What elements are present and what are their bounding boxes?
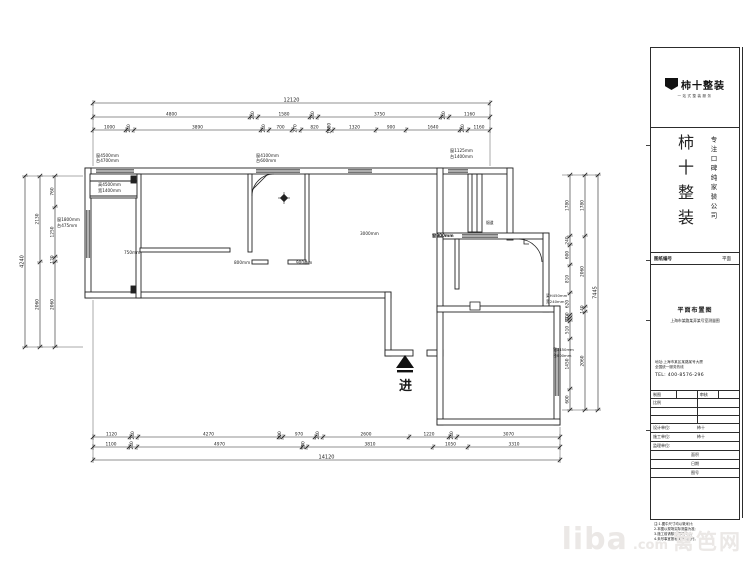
svg-text:240: 240	[460, 124, 466, 132]
svg-text:240: 240	[310, 111, 316, 119]
wall-post	[131, 176, 136, 183]
svg-text:窗1800mm: 窗1800mm	[57, 216, 80, 223]
fold-mark	[646, 260, 650, 261]
svg-text:120: 120	[49, 255, 55, 263]
wall-post	[131, 286, 136, 293]
wall	[252, 260, 268, 264]
svg-text:2060: 2060	[34, 299, 40, 310]
floorplan-svg: 1212048002401580240375024011601000240389…	[0, 0, 750, 563]
drafter-label: 制图	[651, 392, 676, 398]
svg-text:2060: 2060	[49, 299, 55, 310]
brand-vertical-panel: 柿十整装 专注口碑纯家装公司	[651, 128, 739, 253]
wall	[437, 237, 443, 425]
svg-text:240: 240	[126, 124, 132, 132]
svg-text:1160: 1160	[474, 124, 485, 130]
svg-text:3070: 3070	[503, 431, 514, 437]
entry-symbol	[396, 355, 414, 372]
svg-text:宽240mm: 宽240mm	[546, 299, 565, 304]
brand-subtitle: 一站式整装服务	[678, 94, 713, 99]
wall	[248, 174, 252, 252]
svg-text:进: 进	[399, 379, 412, 394]
drafter-value	[676, 391, 697, 398]
svg-text:4800: 4800	[166, 111, 177, 117]
number-row: 图号	[651, 470, 739, 476]
svg-text:140: 140	[579, 305, 585, 313]
area-row: 面积	[651, 452, 739, 458]
svg-text:4270: 4270	[203, 431, 214, 437]
svg-text:台4700mm: 台4700mm	[96, 157, 119, 164]
svg-text:3000mm: 3000mm	[360, 231, 379, 236]
svg-text:600: 600	[564, 395, 570, 403]
svg-text:4240: 4240	[19, 255, 25, 268]
fold-mark	[646, 320, 650, 321]
svg-text:台475mm: 台475mm	[57, 222, 77, 229]
drawing-title: 平面布置图	[651, 305, 739, 314]
project-name: 上海市某路某弄某号室测量图	[651, 318, 739, 324]
phone-number: TEL: 400-8576-296	[655, 373, 735, 378]
svg-text:1080: 1080	[327, 123, 333, 134]
svg-text:600: 600	[564, 251, 570, 259]
wall	[385, 350, 413, 356]
svg-text:梁H450mm: 梁H450mm	[546, 293, 568, 298]
brand-name: 柿十整装	[681, 77, 725, 92]
svg-text:240: 240	[441, 111, 447, 119]
wall	[437, 168, 443, 240]
svg-text:台600mm: 台600mm	[553, 353, 572, 358]
design-unit-value: 柿十	[695, 425, 739, 431]
corner-shower	[519, 239, 542, 262]
fold-mark	[646, 430, 650, 431]
svg-text:1250: 1250	[49, 226, 55, 237]
svg-text:3310: 3310	[509, 441, 520, 447]
svg-text:2060: 2060	[579, 266, 585, 277]
svg-text:宽1400mm: 宽1400mm	[98, 187, 121, 194]
svg-text:800mm: 800mm	[234, 260, 250, 265]
svg-text:240: 240	[449, 431, 455, 439]
entry-arrow-icon	[396, 355, 414, 368]
fold-mark	[646, 145, 650, 146]
checker-label: 审核	[697, 391, 718, 398]
company-logo: 柿十整装 一站式整装服务	[651, 48, 739, 128]
svg-text:窗1450mm: 窗1450mm	[553, 347, 574, 352]
svg-text:900mm: 900mm	[296, 260, 312, 265]
svg-text:240: 240	[250, 111, 256, 119]
window-layer	[86, 169, 560, 396]
svg-text:3890: 3890	[192, 124, 203, 130]
wall	[437, 419, 560, 425]
scale-value	[697, 399, 739, 407]
brand-slogan: 专注口碑纯家装公司	[708, 136, 718, 252]
svg-text:820: 820	[310, 124, 318, 130]
date-row: 日期	[651, 461, 739, 467]
svg-text:1640: 1640	[428, 124, 439, 130]
svg-text:台1400mm: 台1400mm	[450, 153, 473, 160]
duct-shaft	[468, 174, 482, 232]
svg-text:1580: 1580	[279, 111, 290, 117]
svg-text:12120: 12120	[284, 97, 300, 103]
svg-text:14120: 14120	[319, 454, 335, 460]
svg-text:620: 620	[564, 300, 570, 308]
scale-label: 比例	[651, 400, 697, 406]
wall	[455, 239, 459, 289]
wall	[140, 248, 230, 252]
svg-text:240: 240	[261, 124, 267, 132]
brand-logo-icon	[665, 78, 678, 90]
svg-text:90: 90	[564, 317, 570, 323]
svg-text:烟道: 烟道	[486, 220, 494, 225]
svg-text:810: 810	[564, 275, 570, 283]
brand-vertical-text: 柿十整装	[672, 134, 696, 252]
hotline-label: 全国统一服务热线	[655, 365, 735, 370]
title-block: 柿十整装 一站式整装服务 柿十整装 专注口碑纯家装公司 图纸编号 平面 平面布置…	[650, 47, 740, 520]
svg-text:1220: 1220	[424, 431, 435, 437]
svg-text:150: 150	[301, 441, 307, 449]
wall	[437, 306, 560, 312]
wall-layer	[85, 168, 560, 425]
project-panel: 平面布置图 上海市某路某弄某号室测量图 地址:上海市某区某路某号大厦 全国统一服…	[651, 265, 739, 391]
svg-text:1780: 1780	[579, 200, 585, 211]
svg-text:4970: 4970	[214, 441, 225, 447]
drawing-sheet: 1212048002401580240375024011601000240389…	[0, 0, 750, 563]
sheet-number-label: 图纸编号	[651, 256, 722, 262]
svg-text:1320: 1320	[349, 124, 360, 130]
title-block-outer-border	[742, 47, 743, 518]
watermark-com: .com	[633, 538, 668, 553]
svg-text:1160: 1160	[464, 111, 475, 117]
construction-unit-label: 施工单位:	[651, 434, 695, 440]
supervisor-label: 监理单位:	[651, 443, 695, 449]
svg-text:1100: 1100	[106, 441, 117, 447]
svg-text:270: 270	[293, 124, 299, 132]
svg-text:100: 100	[277, 431, 283, 439]
svg-text:240: 240	[315, 431, 321, 439]
svg-text:970: 970	[295, 431, 303, 437]
svg-text:240: 240	[130, 431, 136, 439]
watermark: liba .com 篱笆网	[562, 522, 742, 557]
svg-text:7445: 7445	[592, 286, 598, 299]
svg-text:700: 700	[276, 124, 284, 130]
svg-text:900: 900	[387, 124, 395, 130]
svg-text:750mm: 750mm	[124, 250, 140, 255]
svg-text:1000: 1000	[104, 124, 115, 130]
checker-value	[718, 391, 739, 398]
svg-text:1050: 1050	[445, 441, 456, 447]
wall	[385, 292, 391, 356]
svg-text:240: 240	[564, 236, 570, 244]
fixture-layer	[252, 174, 542, 310]
svg-text:1780: 1780	[564, 200, 570, 211]
svg-text:高4500mm: 高4500mm	[98, 181, 121, 188]
wall	[305, 174, 309, 264]
svg-text:760: 760	[49, 187, 55, 195]
svg-text:2130: 2130	[34, 213, 40, 224]
svg-text:510: 510	[564, 326, 570, 334]
svg-text:240: 240	[129, 441, 135, 449]
watermark-cn: 篱笆网	[673, 526, 742, 556]
svg-text:1450: 1450	[564, 358, 570, 369]
svg-text:台600mm: 台600mm	[256, 157, 276, 164]
svg-text:3810: 3810	[365, 441, 376, 447]
title-block-table: 制图 审核 比例 设计单位: 柿十 施工单位: 柿十 监理单位:	[651, 391, 739, 519]
svg-text:1120: 1120	[106, 431, 117, 437]
sheet-number-value: 平面	[722, 256, 739, 262]
sheet-number-row: 图纸编号 平面	[651, 253, 739, 265]
wall	[507, 168, 513, 240]
svg-text:2060: 2060	[579, 355, 585, 366]
svg-text:3750: 3750	[374, 111, 385, 117]
corner-basin	[252, 174, 274, 196]
construction-unit-value: 柿十	[695, 434, 739, 440]
watermark-liba: liba	[562, 522, 628, 557]
svg-text:窗900mm: 窗900mm	[432, 232, 454, 239]
design-unit-label: 设计单位:	[651, 425, 695, 431]
svg-text:2600: 2600	[361, 431, 372, 437]
svg-text:窗1125mm: 窗1125mm	[450, 147, 473, 154]
